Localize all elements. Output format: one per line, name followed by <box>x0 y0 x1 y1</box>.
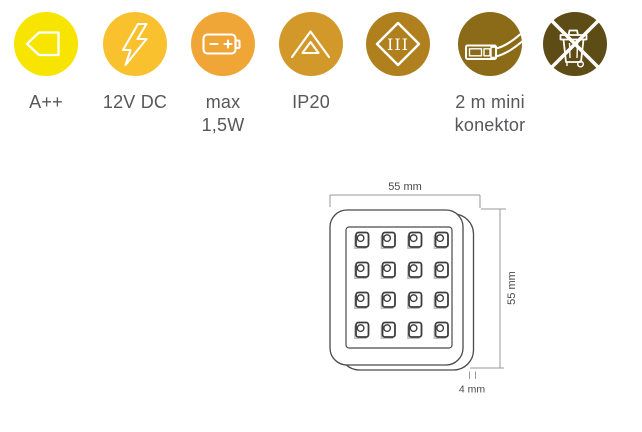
double-triangle-icon <box>273 6 349 82</box>
icon-label: 2 m mini konektor <box>435 91 545 137</box>
class-iii-text: III <box>387 35 409 54</box>
icon-label: IP20 <box>256 91 366 114</box>
spec-energy-class: A++ <box>8 6 84 114</box>
dimension-drawing: 55 mm 55 mm 4 mm <box>320 172 535 407</box>
spec-cable: 2 m mini konektor <box>452 6 528 137</box>
spec-protection-class: III <box>360 6 436 91</box>
icon-circle <box>458 12 522 76</box>
class-iii-diamond-icon: III <box>360 6 436 82</box>
icon-circle <box>103 12 167 76</box>
depth-dimension-label: 4 mm <box>459 384 486 396</box>
crossed-out-trash-bin-icon <box>537 6 613 82</box>
spec-voltage: 12V DC <box>97 6 173 114</box>
icon-circle <box>14 12 78 76</box>
spec-weee <box>537 6 613 91</box>
height-dimension-label: 55 mm <box>506 271 518 305</box>
spec-max-power: max 1,5W <box>185 6 261 137</box>
energy-class-arrow-icon <box>8 6 84 82</box>
cable-connector-icon <box>452 6 528 82</box>
width-dimension-label: 55 mm <box>388 181 422 193</box>
icon-circle <box>191 12 255 76</box>
battery-icon <box>185 6 261 82</box>
lightning-bolt-icon <box>97 6 173 82</box>
spec-ip-rating: IP20 <box>273 6 349 114</box>
